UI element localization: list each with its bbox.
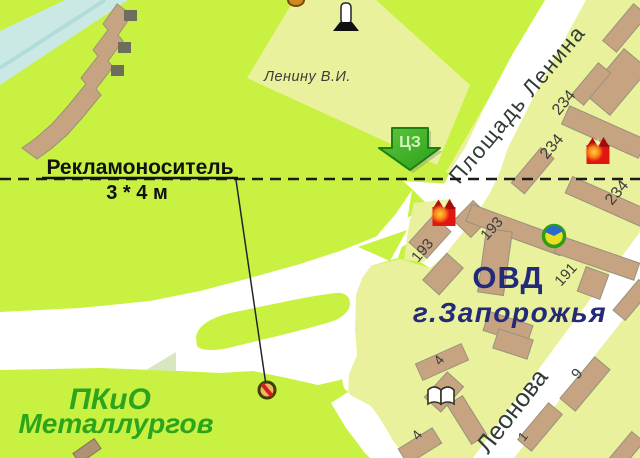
svg-text:ОВД: ОВД (472, 260, 543, 295)
svg-text:Металлургов: Металлургов (18, 408, 213, 439)
svg-text:ЦЗ: ЦЗ (399, 134, 421, 151)
svg-text:3 * 4 м: 3 * 4 м (106, 182, 168, 204)
svg-text:Рекламоноситель: Рекламоноситель (46, 156, 233, 179)
svg-text:Ленину В.И.: Ленину В.И. (263, 69, 351, 85)
svg-text:г.Запорожья: г.Запорожья (413, 297, 607, 328)
